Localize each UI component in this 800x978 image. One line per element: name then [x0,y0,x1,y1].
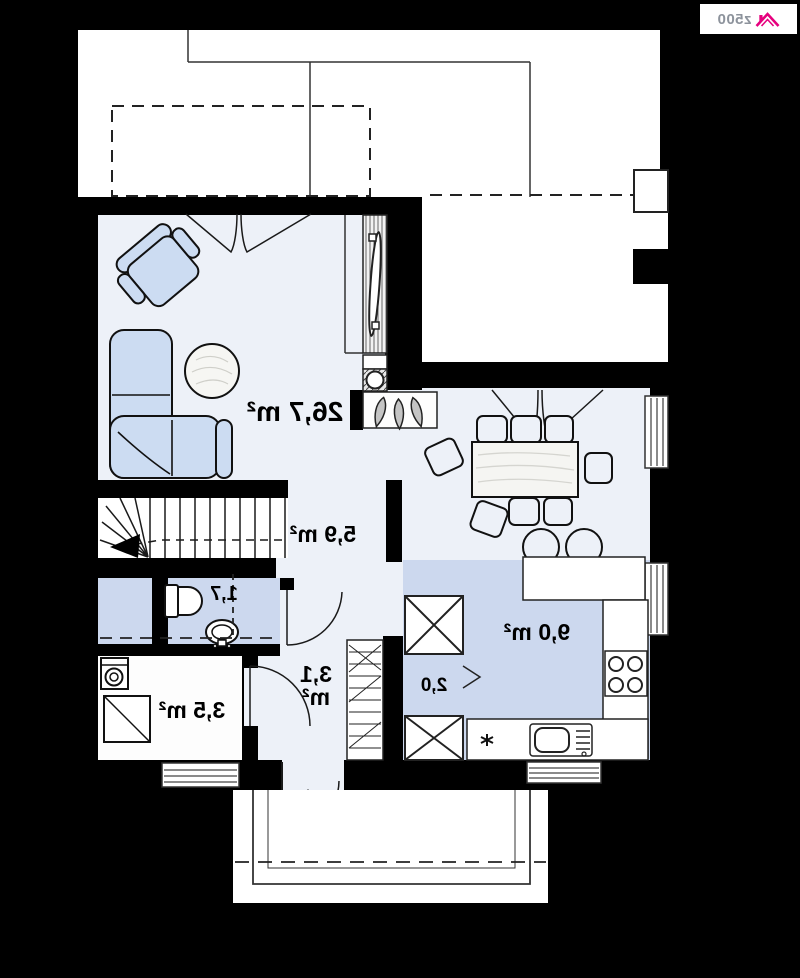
floor-plan-page: 26,7 m² 5,9 m² 1,7 3,5 m² 3,1m² 2,0 9,0 … [0,0,800,978]
window-right-dining [645,396,668,468]
floor-plan-svg [0,0,800,978]
entry-hall-area-value: 3,1 [300,661,332,687]
window-kitchen-bottom [527,762,601,783]
brand-logo-text: z500 [717,11,752,28]
room-label-entry-hall: 3,1m² [283,663,349,710]
brand-logo: z500 [700,4,797,34]
dining-table-icon [472,442,578,497]
washing-machine-icon [101,658,128,689]
bar-counter [523,557,645,600]
coffee-table-icon [185,344,239,398]
wardrobe-icon [347,640,383,760]
porch [233,790,548,903]
stove-icon [605,651,647,696]
entry-hall-area-unit: m² [302,684,330,710]
room-label-bathroom: 3,5 m² [128,699,256,722]
room-label-pantry: 2,0 [407,676,461,695]
room-label-kitchen: 9,0 m² [473,621,601,644]
sink-icon [530,724,592,756]
room-label-living: 26,7 m² [205,398,385,427]
brand-logo-inner: z500 [717,10,781,29]
window-bathroom [162,763,239,787]
closet-floor [98,578,152,644]
room-label-wc: 1,7 [193,584,255,604]
room-label-upper-hall: 5,9 m² [262,523,384,546]
roof-icon [754,10,780,29]
entrance-opening [282,760,344,790]
